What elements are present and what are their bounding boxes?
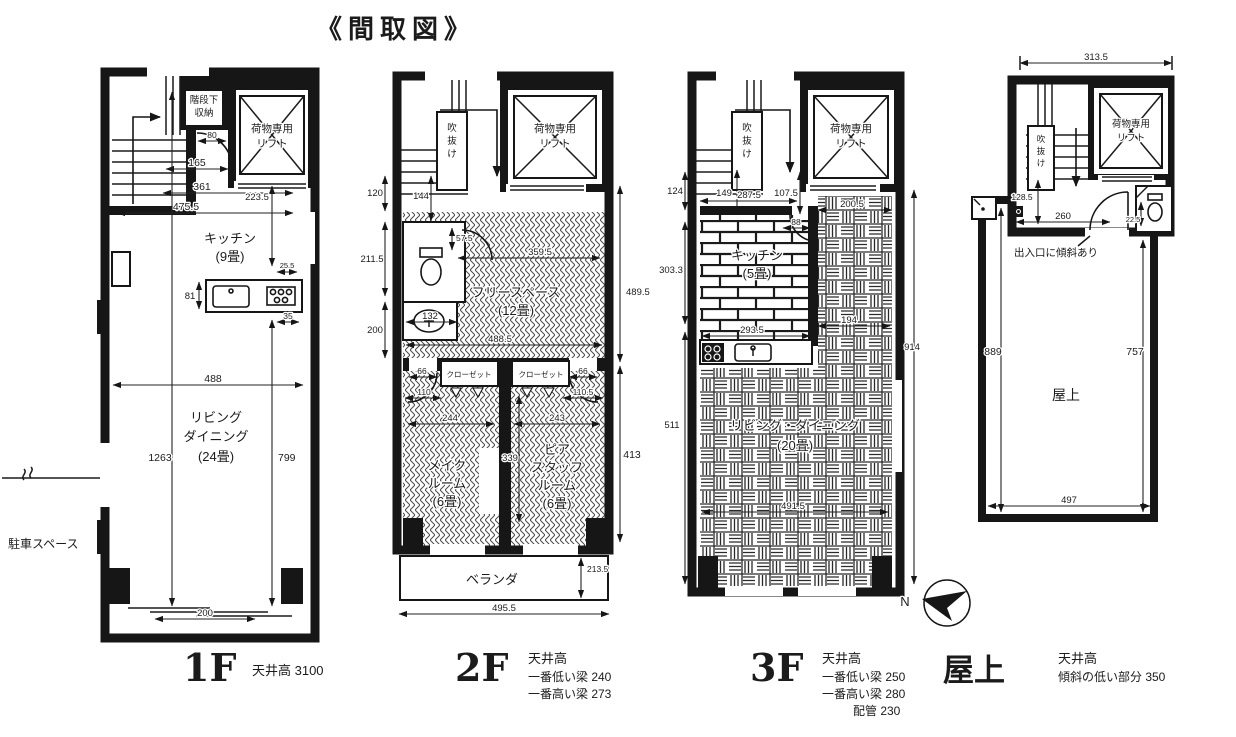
f1-lift-label-1: 荷物専用 xyxy=(251,122,293,135)
f2-dim-488-5: 488.5 xyxy=(488,334,512,345)
f3-ceiling-title: 天井高 xyxy=(822,651,861,666)
f1-staircase xyxy=(112,76,186,204)
f3-living-label: リビング・ダイニング xyxy=(730,418,860,433)
f2-void-char-2: 抜 xyxy=(447,135,457,147)
f1-ceiling-height: 天井高 3100 xyxy=(252,663,324,678)
f1-dim-361: 361 xyxy=(193,181,211,193)
roof-sink-box xyxy=(972,197,996,219)
f2-dim-200: 200 xyxy=(367,325,383,336)
f1-living-dining: リビング ダイニング (24畳) xyxy=(183,410,248,464)
f1-floor-label: 1F xyxy=(183,645,236,690)
f2-closet-left-label: クローゼット xyxy=(447,369,492,379)
floor-plan-2f: 吹 抜 け 荷物専用 リフト クローゼット クローゼット xyxy=(360,70,649,614)
f2-dim-66-right: 66 xyxy=(578,366,588,376)
f2-dim-413: 413 xyxy=(623,449,641,461)
f1-dim-165: 165 xyxy=(188,157,206,169)
f1-wall-fixture xyxy=(112,252,130,286)
page-title: 《間取図》 xyxy=(316,14,476,44)
floor-plan-3f: 吹 抜 け 荷物専用 リフト キッチン (5畳) リビング・ダイニング xyxy=(659,70,920,596)
f3-kitchen-counter xyxy=(700,340,812,364)
f3-ceiling-line-3: 配管 230 xyxy=(853,703,901,718)
f2-dim-243: 243 xyxy=(549,413,565,424)
roof-dim-757: 757 xyxy=(1126,346,1144,358)
f2-dim-66-left: 66 xyxy=(417,366,427,376)
roof-cargo-lift: 荷物専用 リフト xyxy=(1088,80,1170,184)
f3-dim-149: 149 xyxy=(716,188,732,199)
f1-cargo-lift: 荷物専用 リフト xyxy=(228,76,316,191)
f2-lift-label-1: 荷物専用 xyxy=(534,122,576,135)
f1-dim-475-5: 475.5 xyxy=(173,201,199,213)
f1-living-label-1: リビング xyxy=(190,410,242,425)
f3-living-size: (20畳) xyxy=(777,438,813,453)
f1-dim-25-5: 25.5 xyxy=(280,261,295,270)
f2-lift-label-2: リフト xyxy=(539,138,571,150)
roof-drain-fixture xyxy=(1014,206,1023,217)
f1-under-stair-storage: 階段下 収納 xyxy=(185,90,223,126)
f3-lift-label-2: リフト xyxy=(835,138,867,150)
f1-parking-label: 駐車スペース xyxy=(8,536,79,551)
f2-staff-room-size: (6畳) xyxy=(543,496,572,511)
f2-void-char-3: け xyxy=(447,149,457,160)
f3-kitchen-size: (5畳) xyxy=(743,266,772,281)
f1-parking: 駐車スペース xyxy=(2,467,100,551)
f3-void-char-3: け xyxy=(742,149,752,160)
floor-plan-roof: 吹 抜 け 荷物専用 リフト 屋上 出入口に傾斜あり xyxy=(972,52,1172,518)
f3-void-char-1: 吹 xyxy=(742,122,752,134)
roof-ceiling-line-1: 傾斜の低い部分 350 xyxy=(1058,669,1166,684)
f2-void-char-1: 吹 xyxy=(447,122,457,134)
f2-dim-213-5: 213.5 xyxy=(587,564,609,574)
f1-dim-200: 200 xyxy=(197,608,213,619)
roof-utility-block: 吹 抜 け 荷物専用 リフト xyxy=(1012,80,1172,237)
roof-void-char-1: 吹 xyxy=(1037,134,1046,144)
f2-void: 吹 抜 け xyxy=(437,112,467,190)
f1-living-label-2: ダイニング xyxy=(183,429,248,444)
f1-kitchen-size: (9畳) xyxy=(216,249,245,264)
roof-lift-label-1: 荷物専用 xyxy=(1112,118,1150,130)
f3-lift-label-1: 荷物専用 xyxy=(830,122,872,135)
f2-dim-57-5: 57.5 xyxy=(456,233,473,243)
f3-dim-124: 124 xyxy=(667,186,683,197)
roof-void: 吹 抜 け xyxy=(1028,126,1054,190)
f3-dim-303-3: 303.3 xyxy=(659,265,683,276)
f2-staff-room-1: ピア xyxy=(544,442,570,457)
f2-staff-room-2: スタッフ xyxy=(531,460,583,475)
f1-kitchen-label: キッチン xyxy=(204,231,256,246)
compass-north-label: N xyxy=(900,594,909,609)
compass: N xyxy=(900,580,970,626)
f1-dim-223-5: 223.5 xyxy=(245,192,269,203)
roof-dim-22-5: 22.5 xyxy=(1126,215,1141,224)
footer-labels: 1F 天井高 3100 2F 天井高 一番低い梁 240 一番高い梁 273 3… xyxy=(183,645,1166,718)
f2-make-room-2: ルーム xyxy=(428,476,467,491)
f2-dim-132: 132 xyxy=(422,311,438,322)
f3-dim-287-5: 287.5 xyxy=(737,190,761,201)
floor-plan-document: 《間取図》 階段下 収納 荷物専用 リフト キッ xyxy=(0,0,1236,737)
f2-ceiling-line-1: 一番低い梁 240 xyxy=(528,669,612,684)
f3-dim-194: 194 xyxy=(841,315,857,326)
f2-veranda: ベランダ xyxy=(400,556,608,600)
f3-parquet-right xyxy=(818,196,892,372)
roof-void-char-2: 抜 xyxy=(1037,146,1046,156)
f3-dim-511: 511 xyxy=(664,420,679,431)
f1-dim-81: 81 xyxy=(185,291,196,302)
f2-floor-label: 2F xyxy=(455,645,508,690)
roof-dim-260: 260 xyxy=(1055,211,1071,222)
f3-parquet-living xyxy=(700,368,892,586)
roof-void-char-3: け xyxy=(1037,158,1046,168)
f3-ceiling-line-2: 一番高い梁 280 xyxy=(822,686,906,701)
f1-storage-label-2: 収納 xyxy=(194,107,213,119)
f2-dim-359-5: 359.5 xyxy=(528,247,552,258)
f2-ceiling-line-2: 一番高い梁 273 xyxy=(528,686,612,701)
f2-closet-right-label: クローゼット xyxy=(519,369,564,379)
floor-plan-1f: 階段下 収納 荷物専用 リフト キッチン (9畳) リビング ダイニング (24… xyxy=(2,66,316,638)
f2-dim-211-5: 211.5 xyxy=(360,254,383,265)
f2-dim-339: 339 xyxy=(502,453,518,464)
f1-kitchen: キッチン (9畳) xyxy=(112,231,302,312)
f2-dim-244: 244 xyxy=(442,413,458,424)
f1-living-size: (24畳) xyxy=(198,449,234,464)
f2-staff-room-3: ルーム xyxy=(538,478,577,493)
f3-dim-88: 88 xyxy=(791,217,801,227)
f3-dim-914: 914 xyxy=(904,342,920,353)
roof-ceiling-title: 天井高 xyxy=(1058,651,1097,666)
f3-stove-icon xyxy=(702,343,724,362)
f1-dim-799: 799 xyxy=(278,452,296,464)
f3-ceiling-line-1: 一番低い梁 250 xyxy=(822,669,906,684)
f2-dim-495-5: 495.5 xyxy=(492,603,516,614)
roof-area-label: 屋上 xyxy=(1052,387,1080,403)
roof-dim-128-5: 128.5 xyxy=(1011,192,1033,202)
f3-dim-200-5: 200.5 xyxy=(840,199,864,210)
f2-dim-120: 120 xyxy=(367,188,383,199)
f1-dim-1263: 1263 xyxy=(148,452,172,464)
f2-free-space-size: (12畳) xyxy=(498,303,534,318)
f2-dim-489-5: 489.5 xyxy=(626,287,650,298)
f3-floor-label: 3F xyxy=(750,645,803,690)
floor-plan-drawing: 《間取図》 階段下 収納 荷物専用 リフト キッ xyxy=(0,0,1236,737)
f3-dim-293-5: 293.5 xyxy=(740,325,764,336)
f2-make-room-1: メイク xyxy=(428,458,467,473)
roof-dim-497: 497 xyxy=(1061,495,1077,506)
f3-cargo-lift: 荷物専用 リフト xyxy=(800,76,900,193)
f2-ceiling-title: 天井高 xyxy=(528,651,567,666)
roof-slope-note: 出入口に傾斜あり xyxy=(1014,246,1098,259)
f1-dim-488: 488 xyxy=(204,373,222,385)
f3-void-char-2: 抜 xyxy=(742,135,752,147)
roof-dim-889: 889 xyxy=(984,346,1002,358)
f1-storage-label-1: 階段下 xyxy=(190,94,219,106)
f1-lift-label-2: リフト xyxy=(256,138,288,150)
f2-dim-144: 144 xyxy=(413,191,429,202)
f1-kitchen-counter xyxy=(206,280,302,312)
f3-kitchen-label: キッチン xyxy=(731,248,783,263)
f2-free-space-label: フリースペース xyxy=(472,285,561,300)
f3-dim-107-5: 107.5 xyxy=(774,188,798,199)
f2-make-room-size: (6畳) xyxy=(433,494,462,509)
f2-dim-110: 110 xyxy=(417,387,431,397)
roof-lift-label-2: リフト xyxy=(1117,133,1146,144)
f2-cargo-lift: 荷物専用 リフト xyxy=(500,76,609,193)
f1-dim-35: 35 xyxy=(283,311,293,321)
f2-veranda-label: ベランダ xyxy=(466,572,518,587)
roof-dim-313-5: 313.5 xyxy=(1084,52,1108,63)
roof-slope-leader xyxy=(1078,236,1090,246)
f2-dim-110-5: 110.5 xyxy=(573,387,594,397)
f3-dim-491-5: 491.5 xyxy=(781,501,805,512)
roof-floor-label: 屋上 xyxy=(943,653,1005,689)
f1-dim-80: 80 xyxy=(207,130,217,140)
